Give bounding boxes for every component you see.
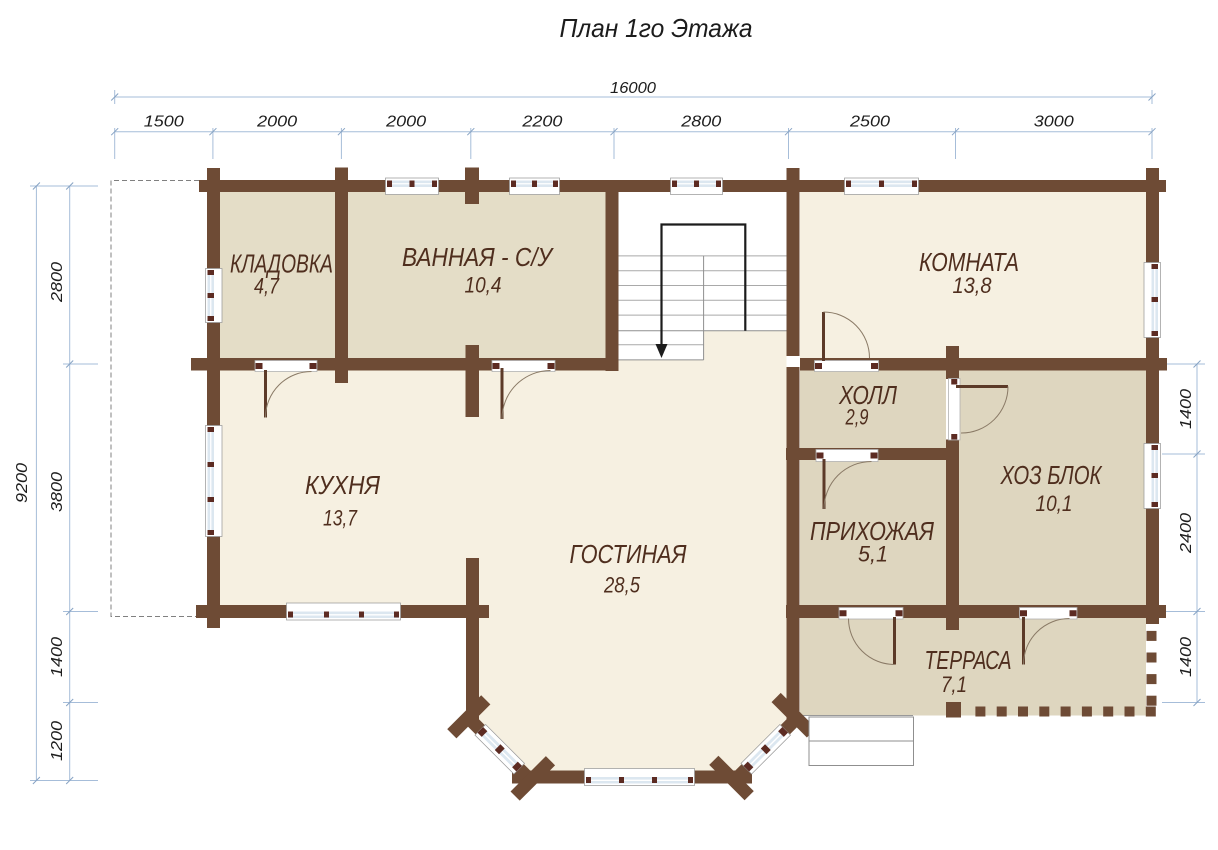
svg-text:КЛАДОВКА: КЛАДОВКА <box>230 251 333 279</box>
svg-text:5,1: 5,1 <box>858 542 888 567</box>
svg-text:1400: 1400 <box>49 637 66 677</box>
svg-text:2,9: 2,9 <box>845 405 869 430</box>
svg-text:13,7: 13,7 <box>323 506 358 531</box>
svg-text:ХОЗ БЛОК: ХОЗ БЛОК <box>1000 462 1103 490</box>
svg-text:1400: 1400 <box>1178 389 1195 429</box>
svg-text:7,1: 7,1 <box>941 672 967 697</box>
svg-text:10,4: 10,4 <box>465 273 502 298</box>
svg-text:1400: 1400 <box>1178 637 1195 677</box>
svg-text:План 1го Этажа: План 1го Этажа <box>560 13 753 43</box>
svg-text:2000: 2000 <box>256 114 297 131</box>
svg-text:2800: 2800 <box>680 114 721 131</box>
svg-text:1500: 1500 <box>144 114 184 131</box>
svg-text:16000: 16000 <box>610 80 656 97</box>
svg-text:13,8: 13,8 <box>953 273 993 298</box>
svg-text:ГОСТИНАЯ: ГОСТИНАЯ <box>570 541 688 569</box>
svg-text:4,7: 4,7 <box>254 274 280 299</box>
svg-text:КУХНЯ: КУХНЯ <box>305 472 381 500</box>
svg-text:28,5: 28,5 <box>603 573 640 598</box>
svg-text:2400: 2400 <box>1178 513 1195 554</box>
svg-text:2000: 2000 <box>385 114 426 131</box>
svg-text:3000: 3000 <box>1034 114 1074 131</box>
svg-text:2800: 2800 <box>49 262 66 303</box>
svg-text:ТЕРРАСА: ТЕРРАСА <box>925 647 1012 675</box>
svg-text:9200: 9200 <box>14 463 31 503</box>
svg-text:1200: 1200 <box>49 721 66 761</box>
svg-text:2200: 2200 <box>521 114 562 131</box>
svg-text:2500: 2500 <box>849 114 890 131</box>
svg-text:3800: 3800 <box>49 472 66 512</box>
svg-text:ВАННАЯ - С/У: ВАННАЯ - С/У <box>402 244 554 272</box>
svg-text:10,1: 10,1 <box>1036 491 1073 516</box>
